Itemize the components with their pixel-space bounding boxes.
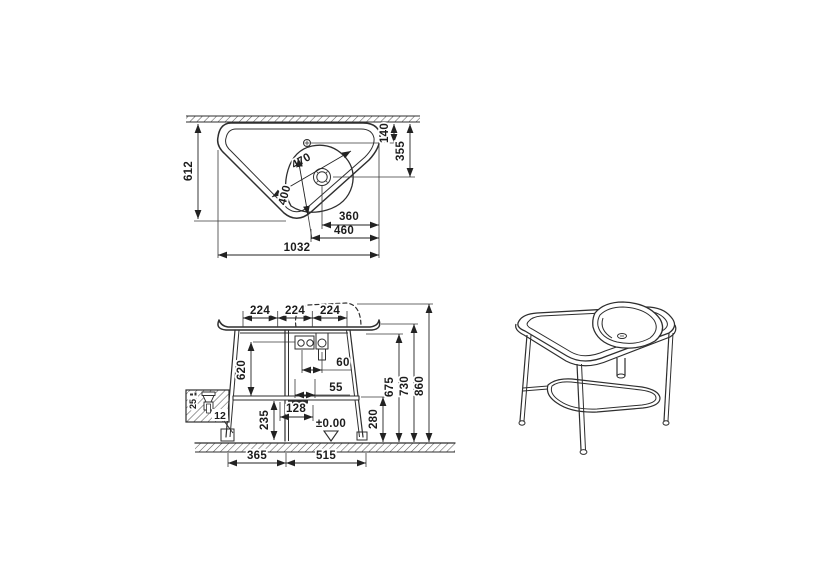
dim-140: 140 (379, 123, 391, 143)
front-view: ±0.00 224 224 224 620 60 55 128 (186, 303, 455, 467)
datum-label: ±0.00 (316, 418, 346, 430)
right-leg (350, 330, 363, 437)
foot-detail-callout: 25 12 (186, 390, 233, 433)
right-leg-inner (347, 330, 360, 437)
dim-860: 860 (414, 376, 426, 396)
leg-front-a (577, 364, 581, 450)
dim-224-mid: 224 (285, 305, 305, 317)
wall-hatch (186, 116, 420, 122)
datum-triangle-icon (324, 431, 338, 441)
dim-515: 515 (316, 450, 336, 462)
leg-left-a (520, 335, 527, 421)
dim-1032: 1032 (284, 242, 311, 254)
foot-screw (207, 404, 211, 413)
detail-dim-25: 25 (188, 399, 198, 409)
dim-365: 365 (247, 450, 267, 462)
dim-280: 280 (368, 409, 380, 429)
dim-620: 620 (236, 360, 248, 380)
dim-235: 235 (259, 410, 271, 430)
technical-drawing: 612 140 355 470 400 360 460 1032 (0, 0, 830, 584)
foot-right (663, 421, 669, 425)
dim-224-left: 224 (250, 305, 270, 317)
counter-front (218, 320, 380, 330)
dim-730: 730 (399, 376, 411, 396)
fixing-hole-right (307, 340, 313, 346)
shelf (233, 396, 359, 400)
perspective-view (516, 302, 676, 454)
top-view: 612 140 355 470 400 360 460 1032 (183, 116, 420, 258)
dim-128: 128 (286, 403, 306, 415)
detail-mark-a (190, 394, 193, 396)
leg-front-b (582, 364, 586, 450)
foot-front (580, 450, 587, 455)
leg-left-b (524, 335, 531, 421)
shelf-tube-outer (547, 379, 660, 412)
dim-460: 460 (334, 225, 354, 237)
dim-360: 360 (339, 211, 359, 223)
detail-callout-12: 12 (214, 410, 226, 422)
dim-355: 355 (395, 141, 407, 161)
foot-left (519, 421, 525, 425)
shelf-tube-inner (551, 382, 656, 409)
adjustable-foot-left (221, 429, 234, 441)
dim-612: 612 (183, 161, 195, 181)
dim-675: 675 (384, 377, 396, 397)
dim-224-right: 224 (320, 305, 340, 317)
drain-pipe (617, 358, 625, 378)
foot-cap (202, 392, 215, 396)
drawing-sheet: 612 140 355 470 400 360 460 1032 (0, 0, 830, 584)
dim-60: 60 (336, 357, 349, 369)
fixing-hole-left (298, 340, 304, 346)
left-leg-inner (230, 330, 239, 437)
dim-55: 55 (329, 382, 343, 394)
pipe-bottom (617, 374, 625, 378)
detail-mark-b (195, 393, 197, 396)
basin-outline-outer (218, 123, 380, 218)
